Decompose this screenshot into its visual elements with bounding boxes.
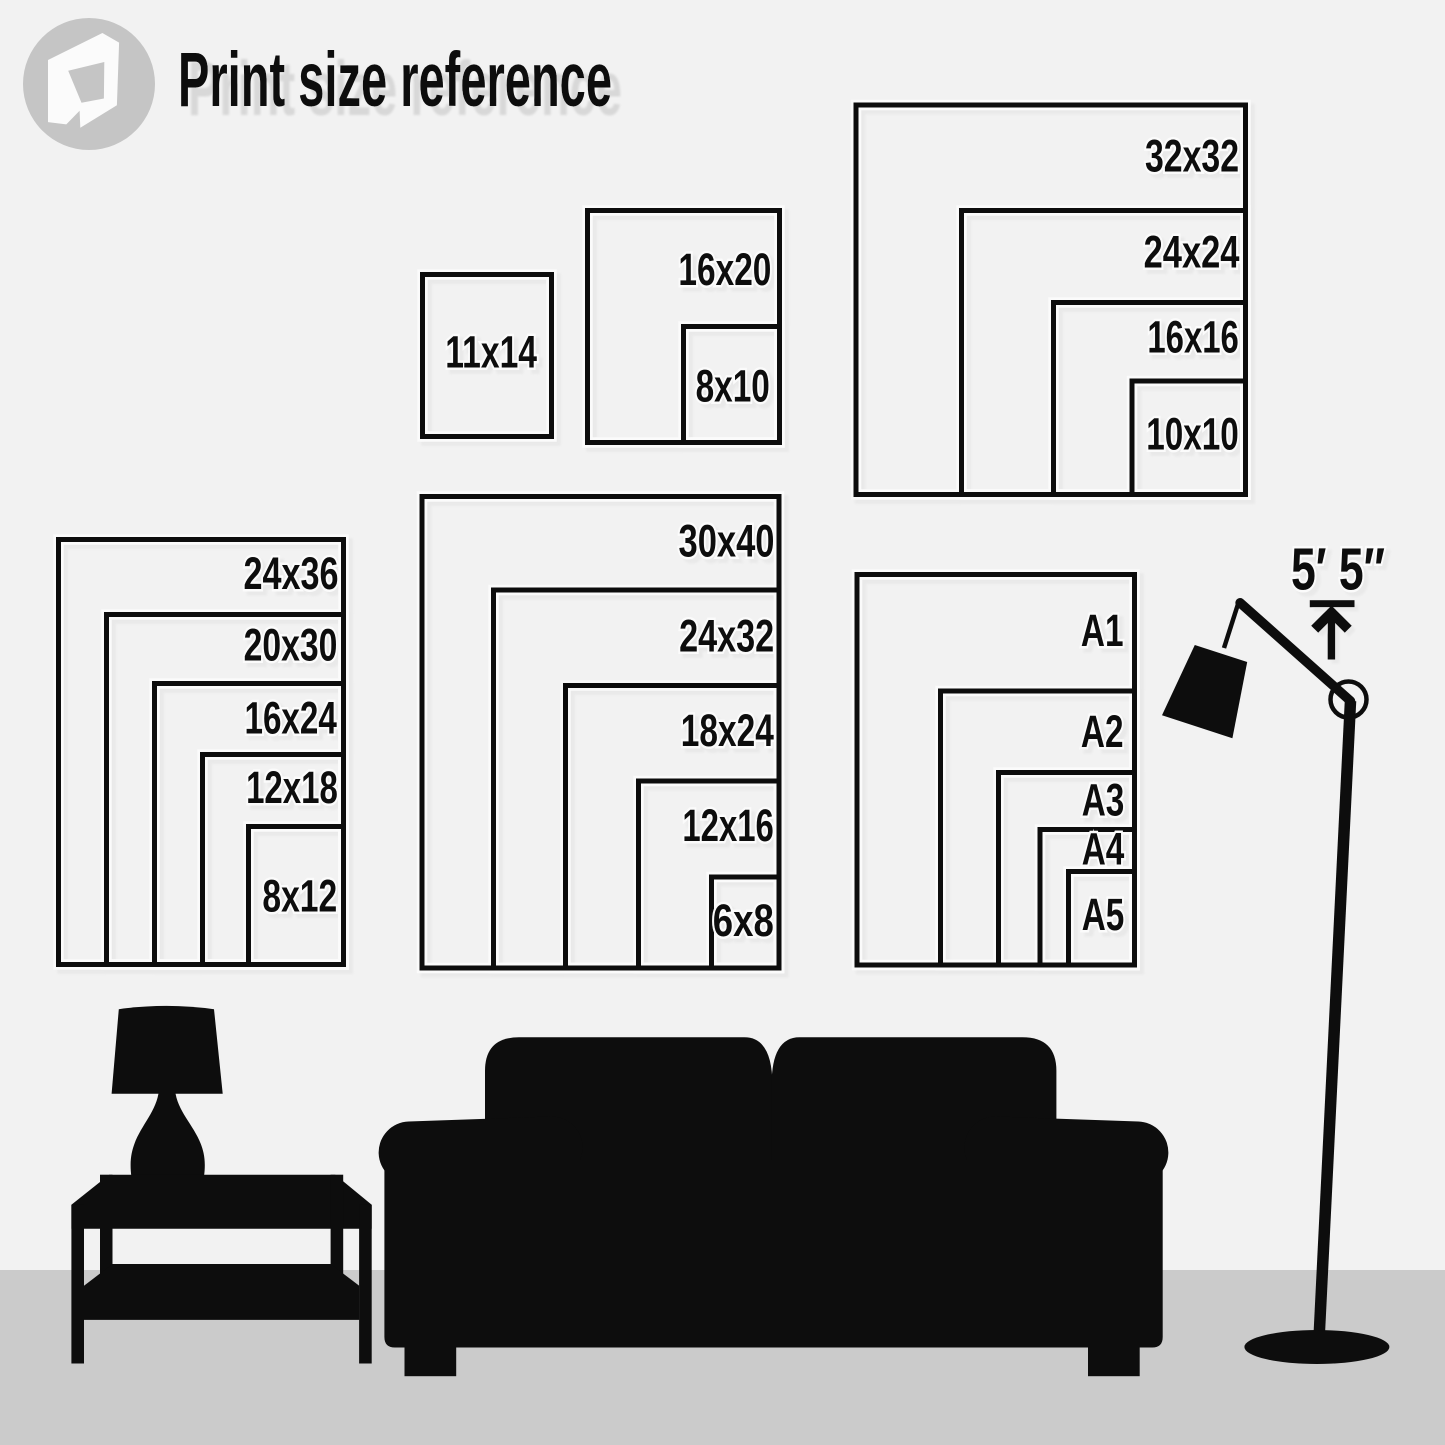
svg-text:11x14: 11x14	[445, 327, 537, 378]
svg-text:8x12: 8x12	[262, 871, 337, 922]
svg-text:12x16: 12x16	[682, 800, 773, 851]
svg-text:A1: A1	[1081, 605, 1124, 656]
svg-text:16x20: 16x20	[678, 244, 771, 295]
svg-text:6x8: 6x8	[713, 895, 774, 946]
svg-text:30x40: 30x40	[679, 516, 775, 567]
svg-text:18x24: 18x24	[681, 705, 774, 756]
svg-text:A3: A3	[1082, 775, 1125, 826]
svg-text:A2: A2	[1081, 706, 1124, 757]
svg-text:Print size reference: Print size reference	[178, 37, 612, 123]
svg-text:16x24: 16x24	[245, 693, 337, 744]
svg-text:5′ 5″: 5′ 5″	[1291, 537, 1385, 603]
svg-text:10x10: 10x10	[1146, 409, 1239, 460]
svg-text:32x32: 32x32	[1145, 131, 1239, 182]
svg-text:24x24: 24x24	[1144, 227, 1240, 278]
svg-text:24x32: 24x32	[679, 611, 774, 662]
svg-text:24x36: 24x36	[244, 548, 339, 599]
svg-text:A5: A5	[1082, 889, 1125, 940]
svg-text:A4: A4	[1082, 824, 1125, 875]
svg-text:8x10: 8x10	[696, 361, 770, 412]
svg-text:12x18: 12x18	[246, 762, 338, 813]
svg-text:20x30: 20x30	[244, 620, 338, 671]
svg-text:16x16: 16x16	[1147, 312, 1238, 363]
